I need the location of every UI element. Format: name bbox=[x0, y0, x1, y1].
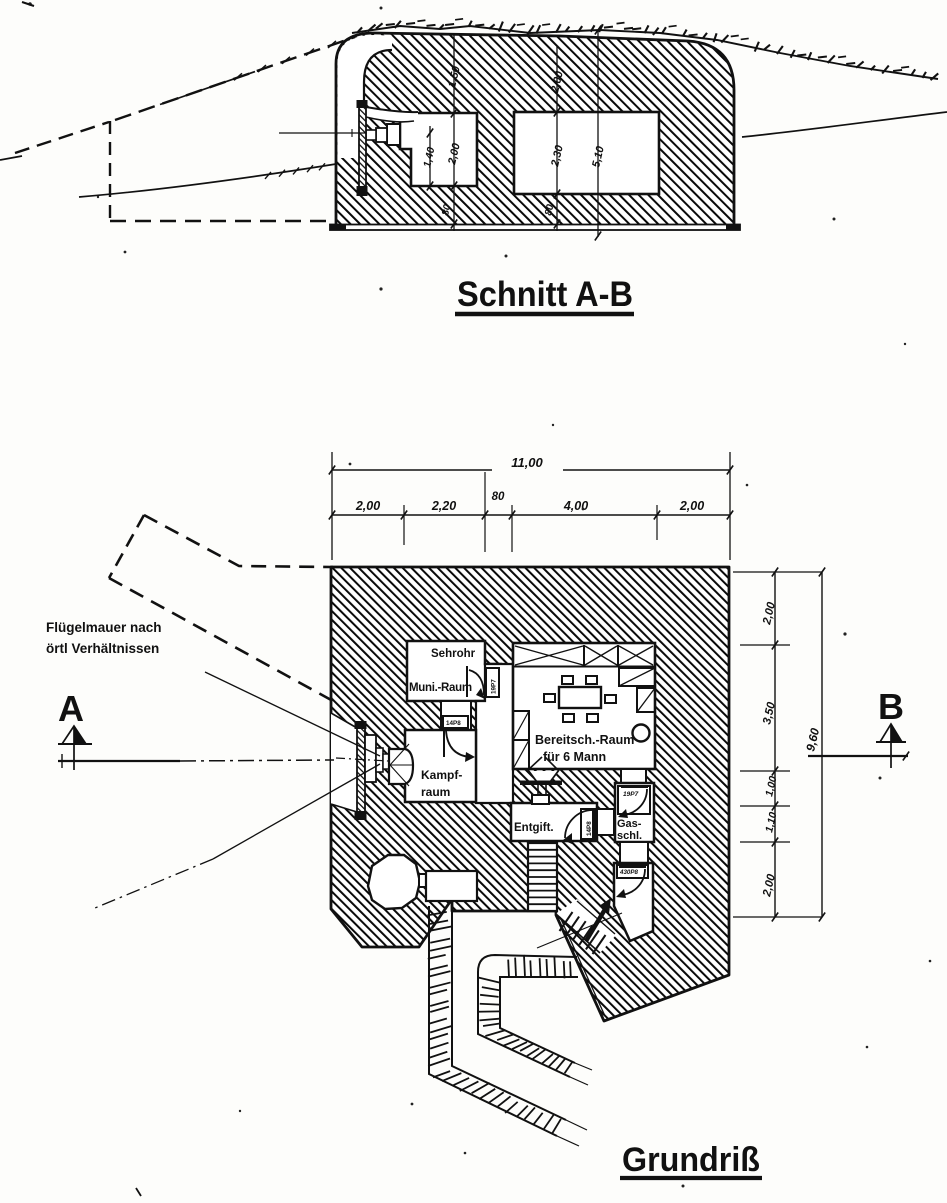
svg-text:430P8: 430P8 bbox=[619, 869, 638, 876]
svg-text:4,00: 4,00 bbox=[563, 499, 588, 513]
svg-text:schl.: schl. bbox=[617, 830, 642, 842]
svg-text:B: B bbox=[878, 686, 904, 727]
svg-text:örtl Verhältnissen: örtl Verhältnissen bbox=[46, 641, 159, 656]
svg-text:14P8: 14P8 bbox=[446, 720, 461, 727]
svg-text:14P8: 14P8 bbox=[586, 821, 593, 836]
svg-text:19P7: 19P7 bbox=[491, 679, 498, 694]
svg-text:für 6 Mann: für 6 Mann bbox=[543, 750, 606, 764]
svg-text:19P7: 19P7 bbox=[623, 791, 639, 798]
svg-text:Schnitt A-B: Schnitt A-B bbox=[457, 275, 633, 314]
svg-text:2,00: 2,00 bbox=[355, 499, 380, 513]
svg-text:2,20: 2,20 bbox=[431, 499, 456, 513]
svg-text:Flügelmauer nach: Flügelmauer nach bbox=[46, 620, 162, 635]
svg-text:Entgift.: Entgift. bbox=[514, 822, 554, 834]
svg-text:Bereitsch.-Raum: Bereitsch.-Raum bbox=[535, 733, 634, 747]
svg-text:11,00: 11,00 bbox=[511, 455, 543, 470]
svg-text:Kampf-: Kampf- bbox=[421, 768, 462, 782]
svg-text:raum: raum bbox=[421, 785, 450, 799]
svg-text:Muni.-Raum: Muni.-Raum bbox=[409, 682, 472, 694]
svg-text:Grundriß: Grundriß bbox=[622, 1141, 760, 1179]
svg-text:2,00: 2,00 bbox=[679, 499, 704, 513]
svg-text:Sehrohr: Sehrohr bbox=[431, 648, 476, 660]
svg-text:Gas-: Gas- bbox=[617, 818, 642, 830]
svg-text:A: A bbox=[58, 688, 84, 729]
svg-text:80: 80 bbox=[492, 491, 505, 503]
